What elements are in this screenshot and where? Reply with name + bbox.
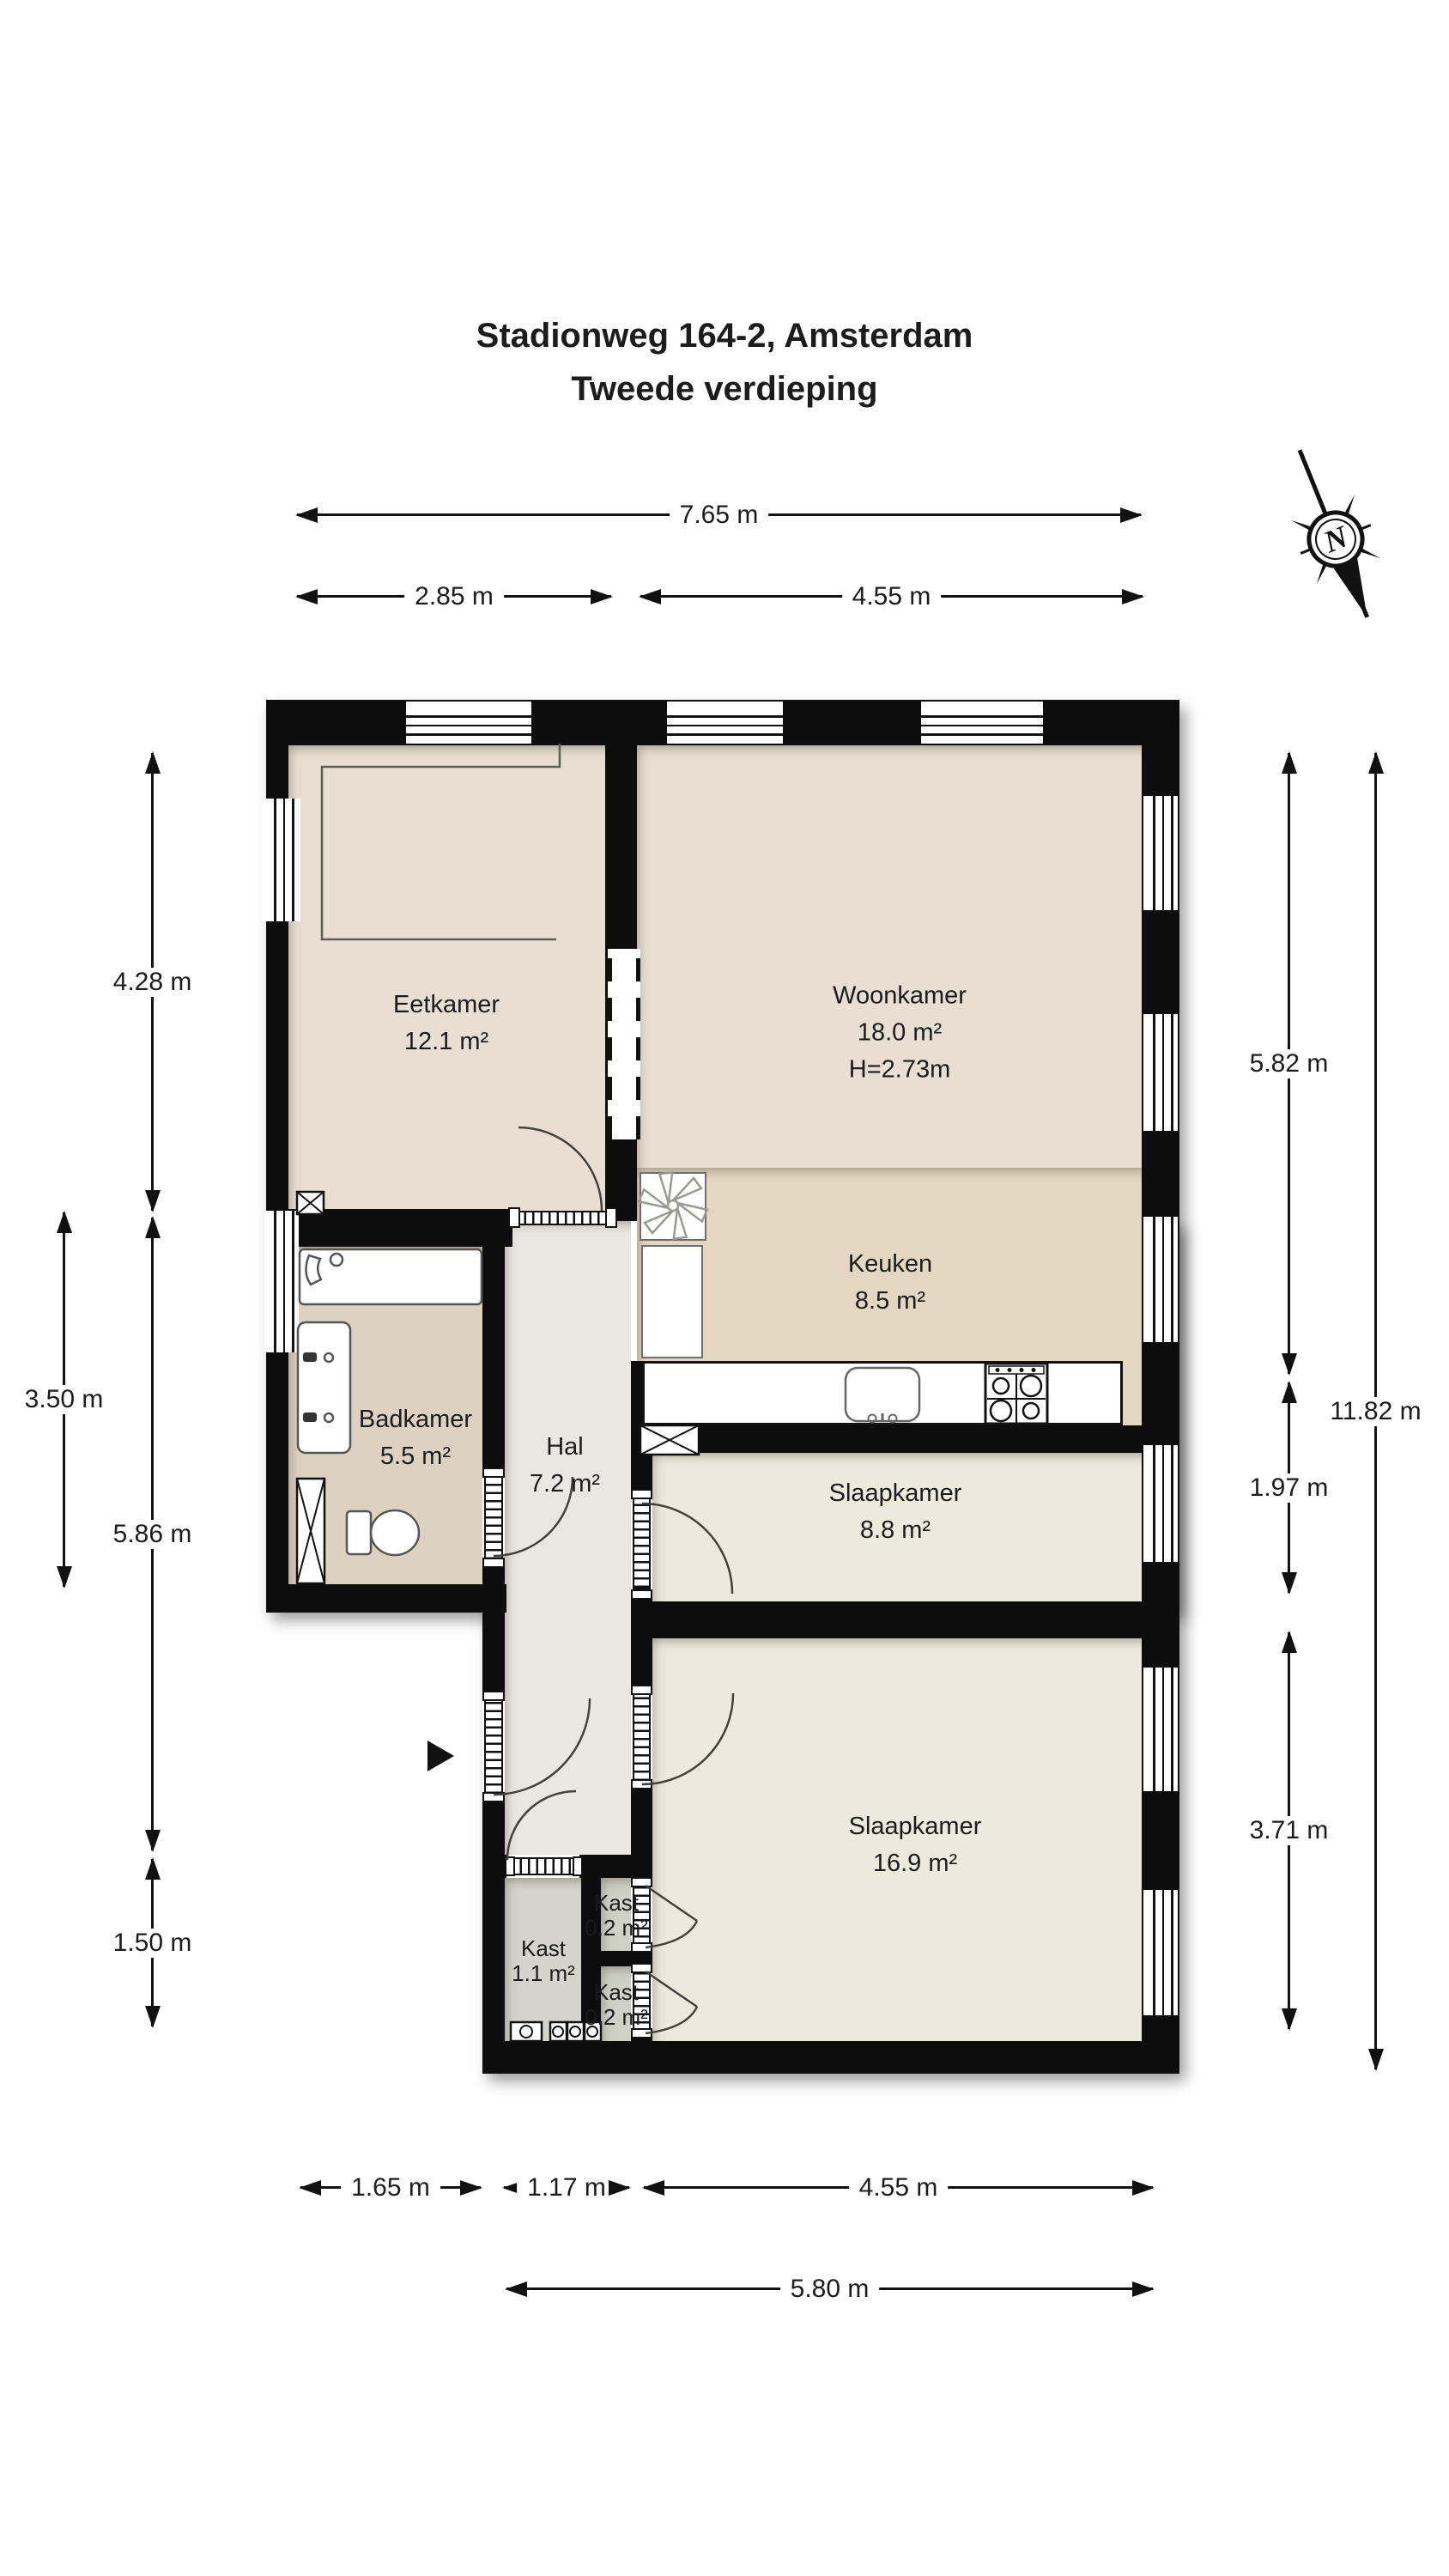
door-eetkamer-leaf [514,1211,609,1225]
window-glazing-icon [667,715,783,736]
page-title: Stadionweg 164-2, Amsterdam Tweede verdi… [0,309,1449,416]
dimension-label: 1.17 m [517,2173,616,2202]
window-slaapkamer-voor-right-2 [1143,1890,1178,2015]
window-glazing-icon [1153,1217,1173,1342]
dimension-left-kast: 1.50 m [151,1859,154,2026]
door-jamb [631,1779,652,1789]
opening-ensuite-dashed [608,949,640,1139]
floorplan-canvas: Stadionweg 164-2, Amsterdam Tweede verdi… [0,0,1449,2576]
room-hal [505,1221,631,1855]
door-jamb [482,1792,505,1802]
window-glazing-icon [1153,1668,1173,1791]
door-jamb [482,1558,505,1568]
dimension-label: 7.65 m [670,501,769,530]
window-woonkamer-right-1 [1143,796,1178,910]
compass-ring [1301,505,1371,574]
door-jamb [631,1877,652,1887]
door-jamb [631,1685,652,1695]
room-name: Woonkamer [833,978,967,1015]
room-label-slaapkamer-voor: Slaapkamer 16.9 m² [849,1808,982,1882]
door-jamb [508,1207,520,1228]
door-jamb [631,1589,652,1600]
door-jamb [482,1467,505,1478]
window-glazing-icon [406,715,531,736]
dimension-top-right: 4.55 m [640,595,1143,598]
window-eetkamer-left [262,799,300,921]
room-area: 7.2 m² [530,1466,600,1503]
wall-eetkamer-badkamer [266,1209,512,1247]
dimension-label: 1.65 m [341,2173,440,2202]
wall-bottom [482,2041,1179,2074]
room-area: 18.0 m² [833,1015,967,1052]
room-woonkamer [637,745,1142,1168]
room-label-eetkamer: Eetkamer 12.1 m² [393,987,500,1060]
dimension-label: 4.28 m [103,968,203,997]
compass-crosshair [1300,526,1371,554]
room-area: 0.2 m² [585,1916,648,1941]
room-name: Slaapkamer [849,1808,982,1845]
room-name: Kast [512,1936,575,1961]
dimension-label: 5.80 m [780,2275,880,2304]
dimension-label: 2.85 m [404,582,504,611]
door-jamb [482,1691,505,1701]
window-glazing-icon [1153,1014,1173,1131]
window-eetkamer-top [406,702,531,744]
door-jamb [573,1856,583,1876]
room-label-keuken: Keuken 8.5 m² [848,1246,932,1320]
room-area: 1.1 m² [512,1961,575,1986]
dimension-label: 4.55 m [842,582,942,611]
dashed-line [636,949,640,1139]
door-jamb [631,1963,652,1973]
dimension-label: 5.82 m [1240,1049,1339,1078]
room-area: 8.5 m² [848,1283,932,1320]
title-floor: Tweede verdieping [0,362,1449,416]
dimension-label: 1.50 m [103,1929,203,1958]
window-glazing-icon [1153,1445,1173,1562]
room-label-kast-onder: Kast 0.2 m² [585,1980,648,2030]
compass-needle [1300,450,1367,617]
dimension-label: 3.50 m [15,1385,114,1414]
compass-north-label: N [1319,519,1355,560]
room-label-kast-boven: Kast 0.2 m² [585,1891,648,1941]
door-badkamer-leaf [484,1474,503,1561]
dimension-left-badkamer: 3.50 m [63,1212,65,1587]
room-area: 5.5 m² [359,1438,472,1475]
kitchen-cabinet [641,1245,703,1358]
window-slaapkamer-achter-right [1143,1445,1178,1562]
door-slaapkamer-voor-leaf [633,1693,651,1783]
dimension-right-slaapkamer-achter: 1.97 m [1288,1382,1290,1593]
door-jamb [605,1207,617,1228]
window-glazing-icon [921,715,1043,736]
dimension-right-woonkamer: 5.82 m [1288,753,1290,1374]
window-glazing-icon [1153,1890,1173,2015]
room-label-hal: Hal 7.2 m² [530,1429,600,1503]
dimension-top-left: 2.85 m [297,595,611,598]
room-area: 12.1 m² [393,1024,500,1060]
dimension-bottom-slaapkamer: 4.55 m [644,2186,1153,2189]
window-badkamer-left [264,1211,299,1352]
door-kast-hal-leaf [510,1857,576,1875]
room-eetkamer [288,745,605,1212]
window-woonkamer-right-2 [1143,1014,1178,1131]
room-name: Badkamer [359,1401,472,1438]
room-area: 8.8 m² [829,1512,962,1549]
window-glazing-icon [274,799,294,921]
room-name: Keuken [848,1246,932,1283]
room-name: Slaapkamer [829,1475,962,1512]
room-area: 16.9 m² [849,1845,982,1882]
window-woonkamer-top-1 [667,702,783,744]
room-name: Hal [530,1429,600,1466]
window-glazing-icon [1153,796,1173,910]
room-label-slaapkamer-achter: Slaapkamer 8.8 m² [829,1475,962,1549]
title-address: Stadionweg 164-2, Amsterdam [0,309,1449,362]
compass-icon: N [1264,436,1402,632]
wall-hal-left [482,1613,505,2041]
dimension-right-slaapkamer-voor: 3.71 m [1288,1632,1290,2029]
dimension-left-hal: 5.86 m [151,1218,154,1850]
door-slaapkamer-achter-leaf [633,1498,651,1589]
room-label-kast-hal: Kast 1.1 m² [512,1936,575,1986]
room-ceiling-height: H=2.73m [833,1052,967,1089]
dimension-label: 4.55 m [849,2173,949,2202]
dimension-label: 3.71 m [1240,1816,1339,1845]
window-slaapkamer-voor-right-1 [1143,1668,1178,1791]
window-keuken-right [1143,1217,1178,1342]
door-entrance-leaf [484,1699,503,1795]
dimension-top-total: 7.65 m [297,513,1141,516]
entrance-arrow-icon [427,1741,454,1771]
kitchen-counter [642,1361,1123,1425]
door-jamb [631,1489,652,1499]
compass-ring-inner [1310,513,1361,565]
room-name: Kast [585,1980,648,2005]
dashed-line [608,949,612,1139]
door-jamb [631,1942,652,1953]
wall-badkamer-bottom [266,1584,506,1613]
compass-rose [1291,495,1399,630]
dimension-label: 11.82 m [1319,1397,1431,1426]
dimension-bottom-hal: 1.17 m [504,2186,629,2189]
door-jamb [505,1856,515,1876]
dimension-bottom-badkamer: 1.65 m [300,2186,481,2189]
dimension-label: 5.86 m [103,1520,203,1549]
window-glazing-icon [274,1211,294,1352]
room-label-badkamer: Badkamer 5.5 m² [359,1401,472,1475]
room-label-woonkamer: Woonkamer 18.0 m² H=2.73m [833,978,967,1089]
room-name: Kast [585,1891,648,1916]
dimension-left-eetkamer: 4.28 m [151,753,154,1211]
kitchen-ventilation-box [640,1172,706,1241]
wall-keuken-bottom [631,1425,1142,1453]
wall-kast-divider-2 [601,1951,633,1966]
dimension-right-total: 11.82 m [1374,753,1377,2069]
dimension-bottom-total: 5.80 m [506,2287,1153,2290]
room-name: Eetkamer [393,987,500,1024]
window-woonkamer-top-2 [921,702,1043,744]
dimension-label: 1.97 m [1240,1473,1339,1503]
room-area: 0.2 m² [585,2005,648,2030]
wall-bedrooms-divider [631,1601,1142,1638]
